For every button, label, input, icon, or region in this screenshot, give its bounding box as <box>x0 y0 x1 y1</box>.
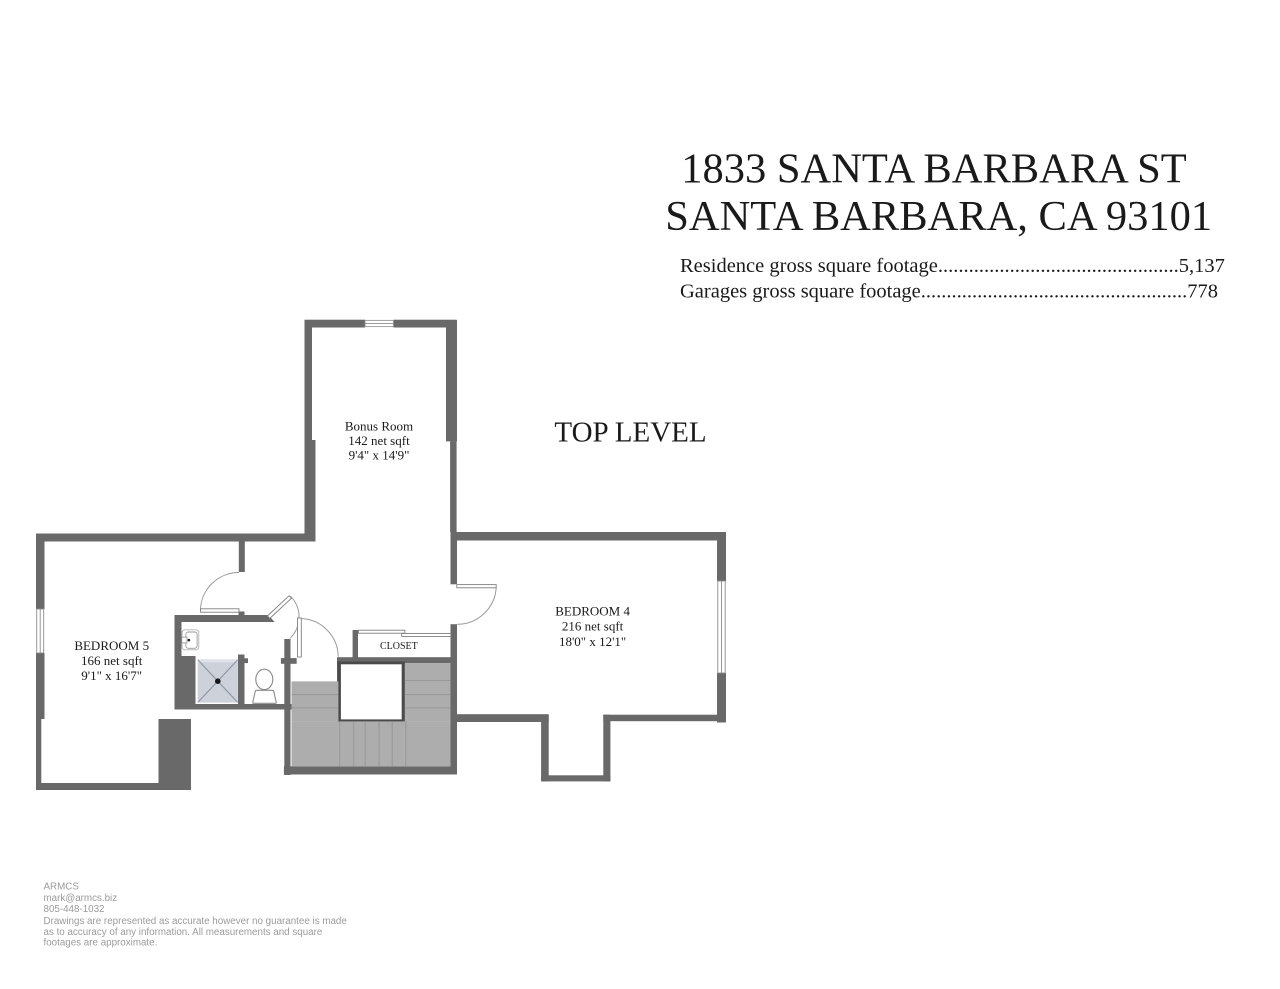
svg-text:1833 SANTA BARBARA ST: 1833 SANTA BARBARA ST <box>681 145 1187 192</box>
svg-text:18'0" x 12'1": 18'0" x 12'1" <box>559 634 626 649</box>
svg-text:TOP LEVEL: TOP LEVEL <box>554 417 706 449</box>
svg-text:BEDROOM 5: BEDROOM 5 <box>74 638 149 653</box>
svg-text:SANTA BARBARA, CA 93101: SANTA BARBARA, CA 93101 <box>665 193 1212 240</box>
svg-text:CLOSET: CLOSET <box>380 641 418 652</box>
svg-text:805-448-1032: 805-448-1032 <box>44 904 105 915</box>
svg-text:9'4" x 14'9": 9'4" x 14'9" <box>349 448 410 463</box>
svg-text:BEDROOM 4: BEDROOM 4 <box>555 603 630 618</box>
svg-text:166 net sqft: 166 net sqft <box>81 653 143 668</box>
svg-text:footages are approximate.: footages are approximate. <box>44 938 158 949</box>
svg-text:Garages gross square footage..: Garages gross square footage............… <box>680 280 1218 302</box>
svg-text:as to accuracy of any informat: as to accuracy of any information. All m… <box>44 927 323 938</box>
svg-text:Residence gross square footage: Residence gross square footage..........… <box>680 255 1225 277</box>
svg-text:ARMCS: ARMCS <box>44 882 80 893</box>
svg-text:mark@armcs.biz: mark@armcs.biz <box>44 893 118 904</box>
svg-text:Bonus Room: Bonus Room <box>345 418 413 433</box>
svg-text:142 net sqft: 142 net sqft <box>348 433 410 448</box>
svg-text:216 net sqft: 216 net sqft <box>562 619 624 634</box>
svg-text:9'1" x 16'7": 9'1" x 16'7" <box>81 668 142 683</box>
svg-text:Drawings are represented as ac: Drawings are represented as accurate how… <box>44 916 348 927</box>
